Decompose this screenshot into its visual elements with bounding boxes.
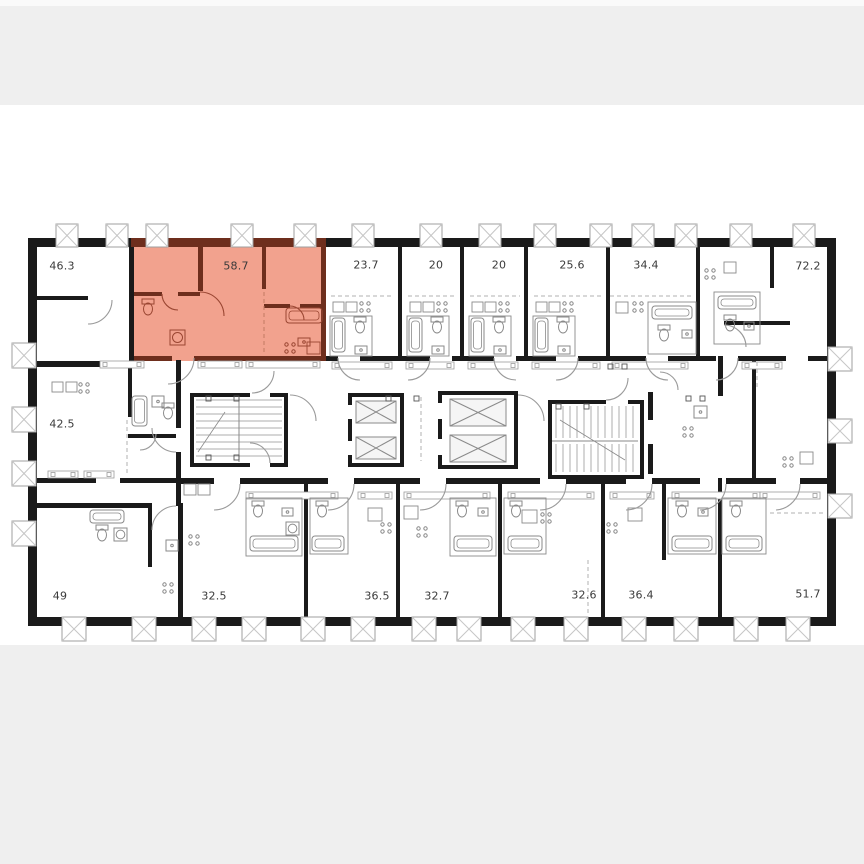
apartment-region-49[interactable]: [37, 508, 177, 615]
apartment-region-34-4[interactable]: [610, 247, 696, 353]
apartment-region-46-3[interactable]: [34, 247, 129, 357]
selected-apartment-region-58-7[interactable]: [134, 247, 321, 356]
apartment-region-32-5[interactable]: [183, 486, 303, 615]
apartment-region-25-6[interactable]: [528, 247, 606, 353]
apartment-region-20-b[interactable]: [464, 247, 524, 353]
apartment-region-36-4[interactable]: [605, 486, 717, 615]
apartment-region-72-2[interactable]: [700, 247, 827, 353]
apartment-region-36-5[interactable]: [308, 486, 395, 615]
apartment-region-32-7[interactable]: [400, 486, 497, 615]
apartment-region-20-a[interactable]: [402, 247, 460, 353]
apartment-region-42-5[interactable]: [37, 368, 176, 476]
apartment-region-32-6[interactable]: [502, 486, 600, 615]
apartment-region-23-7[interactable]: [328, 247, 398, 353]
floor-plan-page: 46.3 58.7 23.7 20 20 25.6 34.4 72.2 42.5…: [0, 0, 864, 864]
apartment-region-51-7[interactable]: [722, 486, 826, 615]
